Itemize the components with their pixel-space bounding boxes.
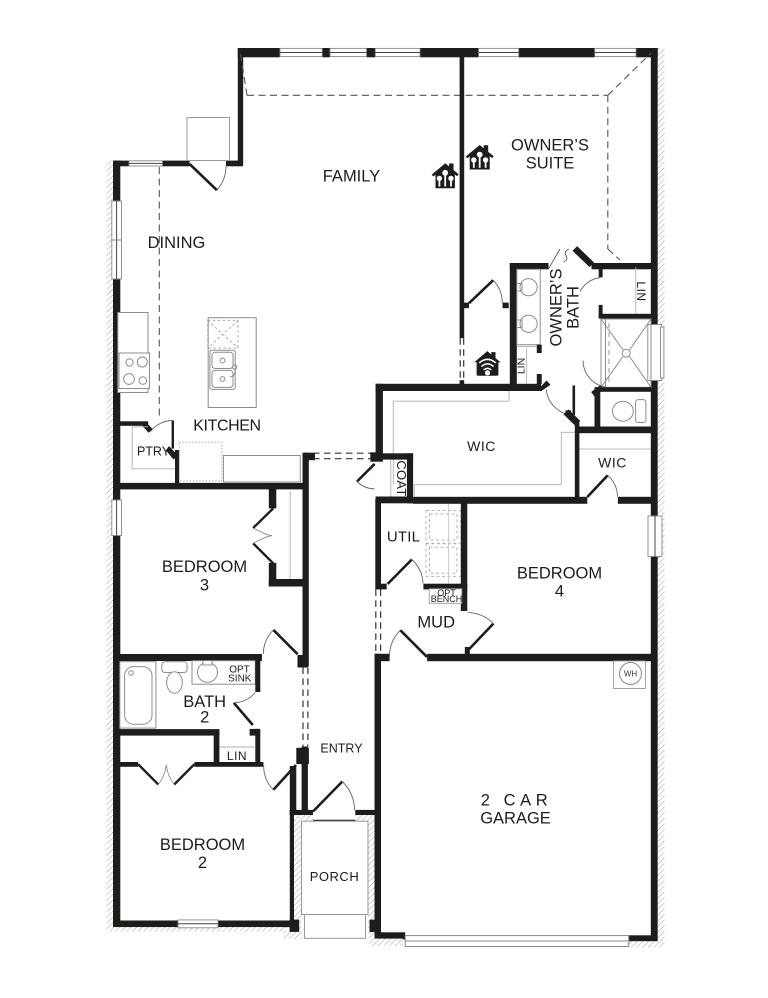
svg-text:2 CAR: 2 CAR [481,792,553,810]
svg-text:WIC: WIC [467,438,496,454]
svg-text:3: 3 [200,577,209,595]
svg-text:BEDROOM: BEDROOM [162,558,247,576]
svg-text:SUITE: SUITE [526,155,575,173]
svg-text:SINK: SINK [228,673,252,684]
svg-text:BEDROOM: BEDROOM [160,836,245,854]
svg-text:DINING: DINING [148,234,206,252]
svg-text:OWNER’S: OWNER’S [548,269,566,347]
svg-text:GARAGE: GARAGE [480,810,551,828]
svg-text:PTRY: PTRY [137,445,171,459]
svg-text:WH: WH [624,670,638,679]
svg-text:4: 4 [555,583,564,601]
svg-text:WIC: WIC [598,455,627,471]
svg-text:ENTRY: ENTRY [320,742,363,756]
svg-text:LIN: LIN [227,749,247,763]
svg-text:COAT: COAT [394,460,409,496]
svg-text:MUD: MUD [417,614,455,632]
svg-text:OWNER’S: OWNER’S [511,137,589,155]
svg-text:LIN: LIN [516,358,528,374]
svg-text:LIN: LIN [634,281,648,301]
svg-text:2: 2 [198,854,207,872]
svg-text:BEDROOM: BEDROOM [517,565,602,583]
svg-text:UTIL: UTIL [387,529,420,546]
svg-text:2: 2 [200,709,209,727]
svg-text:BENCH: BENCH [431,594,463,604]
svg-text:KITCHEN: KITCHEN [193,418,260,435]
svg-text:BATH: BATH [565,286,583,329]
svg-text:FAMILY: FAMILY [323,168,380,186]
svg-text:PORCH: PORCH [310,869,359,884]
